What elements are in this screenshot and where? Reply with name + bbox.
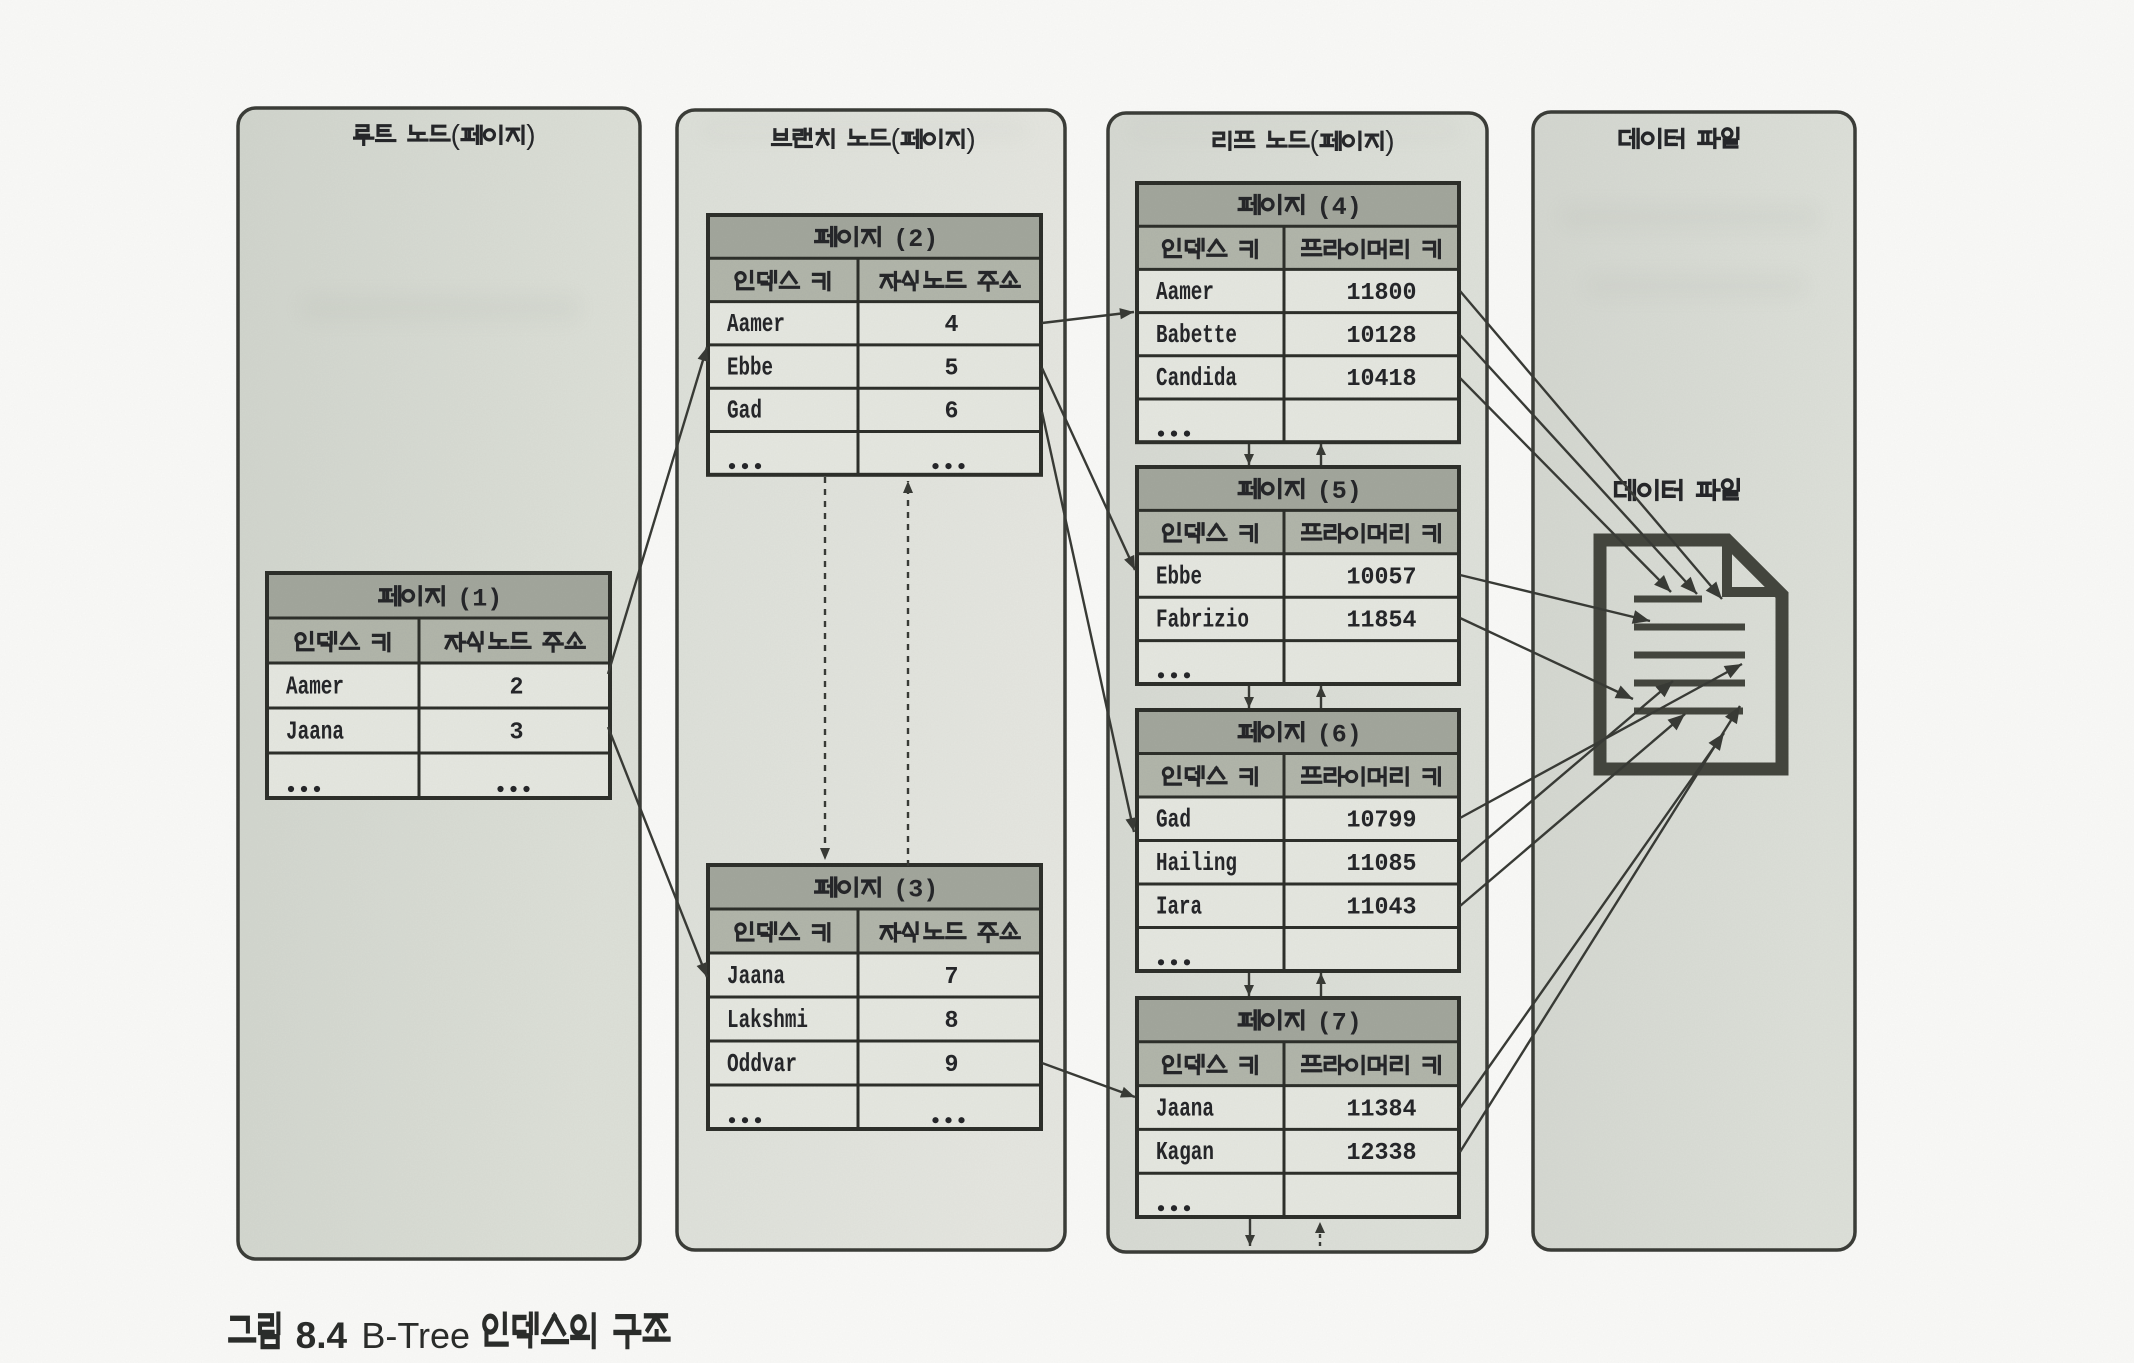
svg-text:B-Tree: B-Tree xyxy=(351,1315,480,1356)
svg-text:8.4: 8.4 xyxy=(285,1315,347,1356)
